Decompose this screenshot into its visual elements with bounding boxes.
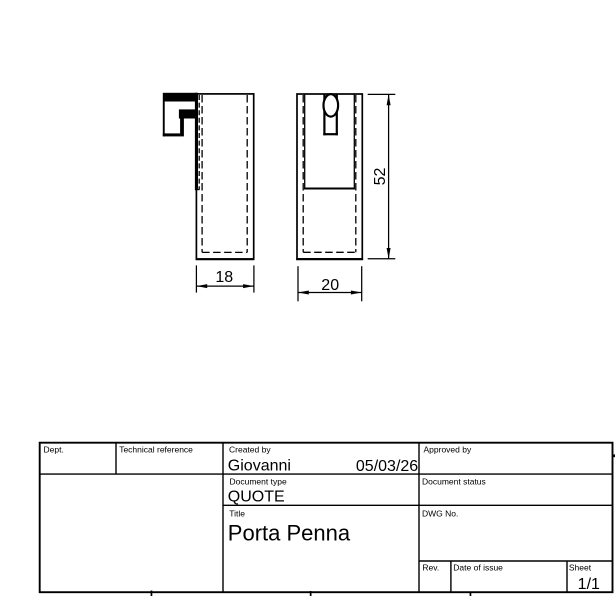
svg-text:Porta Penna: Porta Penna: [228, 520, 351, 545]
svg-text:05/03/26: 05/03/26: [356, 458, 418, 475]
svg-text:QUOTE: QUOTE: [228, 489, 285, 506]
svg-text:Rev.: Rev.: [422, 563, 439, 573]
svg-text:Technical reference: Technical reference: [119, 445, 193, 455]
svg-text:1/1: 1/1: [578, 576, 600, 593]
svg-text:Date of issue: Date of issue: [453, 562, 503, 572]
svg-text:Created by: Created by: [229, 445, 271, 455]
svg-text:Dept.: Dept.: [44, 445, 64, 455]
svg-text:Title: Title: [229, 509, 245, 519]
svg-text:18: 18: [215, 269, 233, 286]
svg-text:20: 20: [321, 277, 339, 294]
svg-text:52: 52: [372, 168, 389, 186]
svg-text:Approved by: Approved by: [424, 445, 472, 455]
svg-text:Document status: Document status: [422, 476, 486, 486]
svg-text:Document type: Document type: [230, 476, 287, 486]
svg-text:Sheet: Sheet: [569, 562, 592, 572]
svg-text:Giovanni: Giovanni: [228, 458, 291, 475]
svg-text:DWG No.: DWG No.: [422, 509, 458, 519]
